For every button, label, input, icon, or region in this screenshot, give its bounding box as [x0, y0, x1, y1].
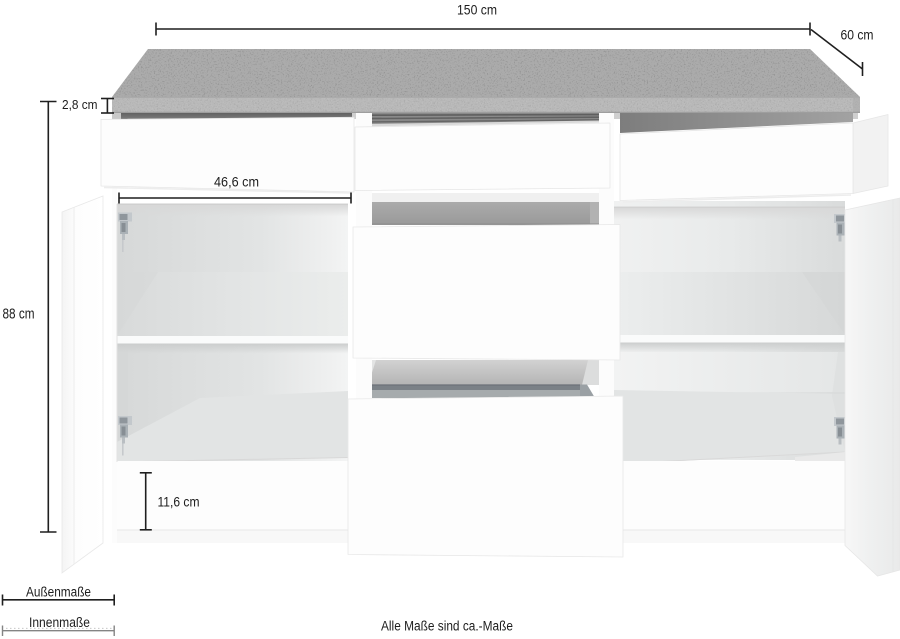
svg-text:150 cm: 150 cm: [457, 1, 497, 17]
svg-text:Außenmaße: Außenmaße: [26, 585, 91, 600]
svg-text:60 cm: 60 cm: [841, 27, 874, 43]
svg-text:Innenmaße: Innenmaße: [29, 615, 90, 630]
svg-text:88 cm: 88 cm: [3, 306, 35, 322]
svg-text:11,6 cm: 11,6 cm: [158, 494, 200, 510]
svg-text:2,8 cm: 2,8 cm: [62, 98, 98, 112]
svg-text:46,6 cm: 46,6 cm: [214, 174, 259, 190]
svg-text:Alle Maße sind ca.-Maße: Alle Maße sind ca.-Maße: [381, 619, 513, 634]
